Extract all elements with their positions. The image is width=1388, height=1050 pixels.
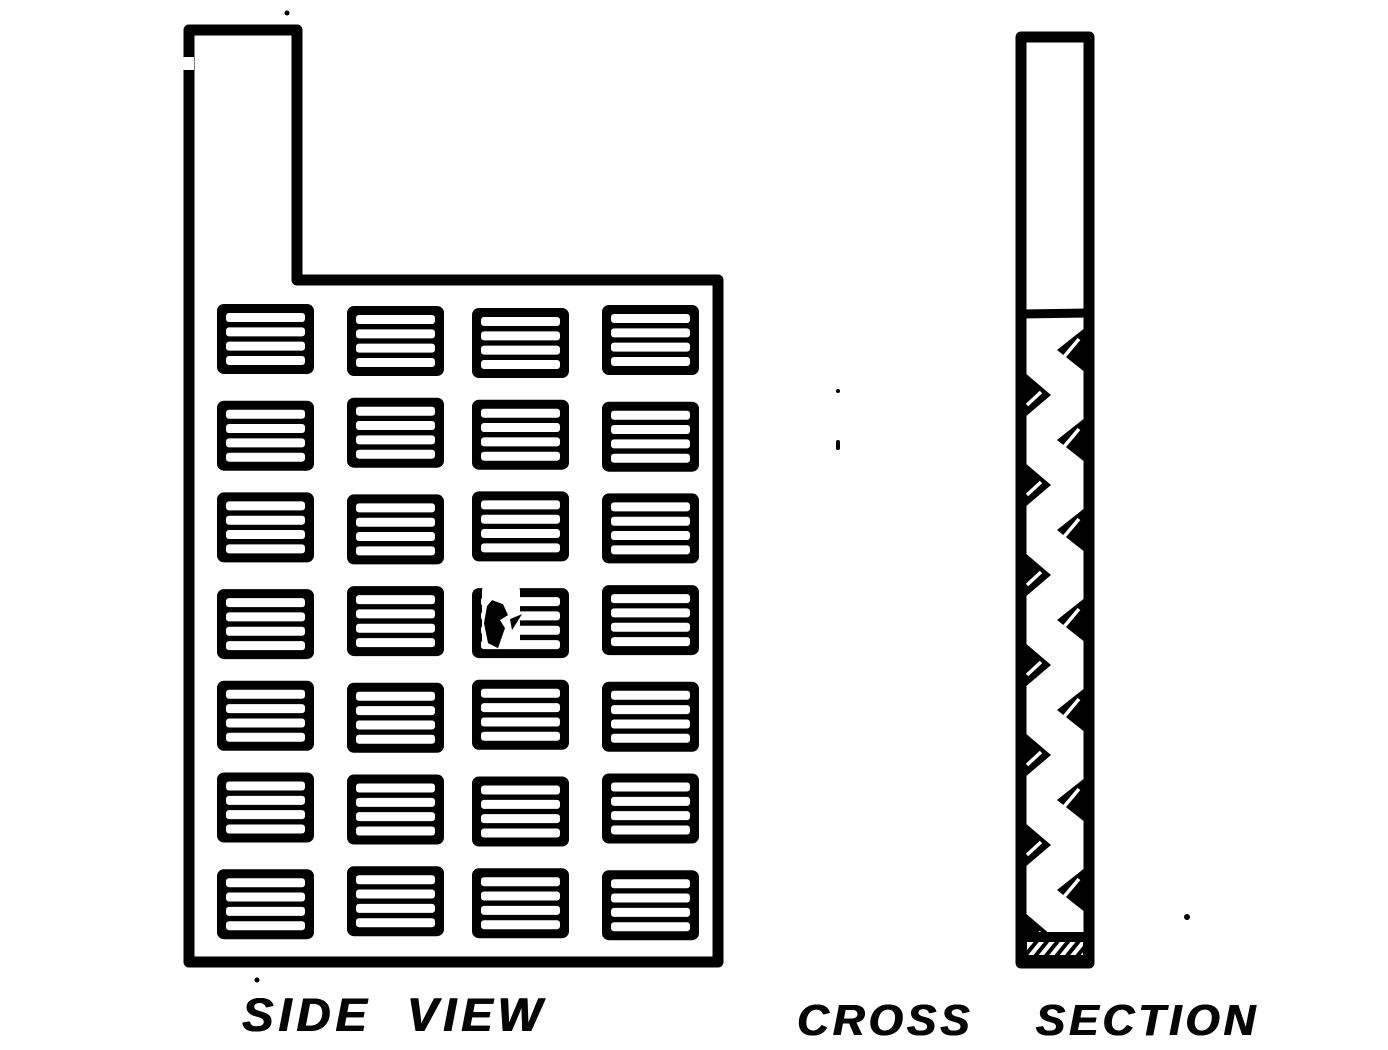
- side-view-figure: [181, 30, 718, 962]
- grid-cell-stripe: [226, 641, 305, 650]
- grid-cell: [217, 304, 314, 374]
- grid-cell-stripe: [611, 783, 690, 792]
- grid-cell-stripe: [611, 879, 690, 888]
- grid-cell-stripe: [356, 407, 435, 416]
- grid-cell-stripe: [356, 692, 435, 701]
- grid-cell-stripe: [226, 438, 305, 447]
- grid-cell-stripe: [611, 594, 690, 603]
- grid-cell-stripe: [611, 531, 690, 540]
- figure-canvas: SIDE VIEW CROSS SECTION: [0, 0, 1388, 1050]
- grid-cell-stripe: [356, 450, 435, 459]
- grid-cell-stripe: [611, 357, 690, 366]
- grid-cell-stripe: [226, 704, 305, 713]
- grid-cell-stripe: [356, 358, 435, 367]
- grid-cell-stripe: [226, 356, 305, 365]
- grid-cell-stripe: [356, 518, 435, 527]
- grid-cell: [472, 308, 569, 378]
- cross-section-divider-line: [1021, 313, 1089, 314]
- grid-cell-stripe: [481, 877, 560, 886]
- grid-cell-stripe: [356, 918, 435, 927]
- grid-cell-stripe: [611, 517, 690, 526]
- grid-cell-stripe: [611, 734, 690, 743]
- grid-cell-stripe: [226, 410, 305, 419]
- grid-cell-stripe: [611, 411, 690, 420]
- grid-cell-stripe: [226, 810, 305, 819]
- grid-cell-stripe: [356, 435, 435, 444]
- grid-cell-stripe: [481, 906, 560, 915]
- ink-speck: [255, 978, 260, 983]
- grid-cell-stripe: [226, 530, 305, 539]
- grid-cell-stripe: [356, 609, 435, 618]
- grid-cell-stripe: [356, 784, 435, 793]
- scan-gap-artifact: [181, 57, 194, 70]
- grid-cell-stripe: [481, 346, 560, 355]
- grid-cell-stripe: [481, 703, 560, 712]
- grid-cell-stripe: [226, 342, 305, 351]
- grid-cell: [347, 866, 444, 936]
- grid-cell-stripe: [356, 826, 435, 835]
- grid-cell-stripe: [356, 595, 435, 604]
- grid-cell-stripe: [481, 331, 560, 340]
- grid-cell-stripe: [356, 315, 435, 324]
- grid-cell-stripe: [226, 824, 305, 833]
- grid-cell-stripe: [356, 735, 435, 744]
- grid-cell-stripe: [356, 875, 435, 884]
- grid-cell-stripe: [611, 454, 690, 463]
- grid-cell-stripe: [481, 500, 560, 509]
- grid-cell: [217, 401, 314, 471]
- grid-cell: [472, 777, 569, 847]
- grid-cell: [347, 494, 444, 564]
- grid-cell: [602, 585, 699, 655]
- ink-speck: [1184, 914, 1190, 920]
- grid-cell-stripe: [481, 437, 560, 446]
- grid-cell-stripe: [226, 921, 305, 930]
- grid-cell: [347, 586, 444, 656]
- grid-cell-stripe: [356, 329, 435, 338]
- grid-cell-stripe: [611, 425, 690, 434]
- grid-cell-stripe: [226, 544, 305, 553]
- grid-cell-stripe: [356, 532, 435, 541]
- grid-cell-stripe: [481, 317, 560, 326]
- grid-cell: [602, 870, 699, 940]
- grid-cell-stripe: [226, 424, 305, 433]
- grid-cell-stripe: [481, 409, 560, 418]
- grid-cell-stripe: [481, 732, 560, 741]
- grid-cell-stripe: [226, 718, 305, 727]
- grid-cell-stripe: [356, 546, 435, 555]
- grid-cell-stripe: [611, 328, 690, 337]
- grid-cell-stripe: [611, 922, 690, 931]
- grid-cell-stripe: [356, 624, 435, 633]
- grid-cell-stripe: [481, 892, 560, 901]
- grid-cell-stripe: [611, 894, 690, 903]
- grid-cell-stripe: [611, 623, 690, 632]
- grid-cell-stripe: [226, 501, 305, 510]
- grid-cell-stripe: [481, 543, 560, 552]
- ink-speck: [285, 11, 290, 16]
- grid-cell-stripe: [356, 798, 435, 807]
- grid-cell: [347, 306, 444, 376]
- grid-cell-stripe: [481, 423, 560, 432]
- grid-cell: [217, 589, 314, 659]
- grid-cell-stripe: [356, 890, 435, 899]
- grid-cell-stripe: [356, 503, 435, 512]
- grid-cell-stripe: [611, 825, 690, 834]
- grid-cell: [472, 491, 569, 561]
- grid-cell-stripe: [481, 786, 560, 795]
- grid-cell: [217, 492, 314, 562]
- grid-cell-stripe: [481, 515, 560, 524]
- grid-cell: [347, 775, 444, 845]
- grid-cell-stripe: [226, 612, 305, 621]
- grid-cell-stripe: [226, 907, 305, 916]
- grid-cell-stripe: [611, 608, 690, 617]
- grid-cell-stripe: [611, 705, 690, 714]
- grid-cell-stripe: [226, 733, 305, 742]
- cross-section-label: CROSS SECTION: [797, 996, 1259, 1046]
- grid-cell-stripe: [611, 439, 690, 448]
- grid-cell-stripe: [481, 800, 560, 809]
- grid-cell-stripe: [226, 782, 305, 791]
- grid-cell-stripe: [611, 502, 690, 511]
- grid-cell: [472, 680, 569, 750]
- grid-cell-stripe: [226, 516, 305, 525]
- grid-cell: [347, 398, 444, 468]
- grid-cell-stripe: [356, 638, 435, 647]
- grid-cell: [347, 683, 444, 753]
- grid-cell-stripe: [226, 598, 305, 607]
- grid-cell: [472, 400, 569, 470]
- grid-cell-stripe: [481, 828, 560, 837]
- grid-cell: [472, 585, 569, 658]
- grid-cell-stripe: [481, 360, 560, 369]
- grid-cell: [602, 305, 699, 375]
- grid-cell-stripe: [356, 421, 435, 430]
- side-view-label: SIDE VIEW: [242, 987, 547, 1042]
- grid-cell: [602, 682, 699, 752]
- grid-cell-stripe: [611, 797, 690, 806]
- grid-cell-stripe: [226, 327, 305, 336]
- grid-cell: [472, 868, 569, 938]
- grid-cell-stripe: [226, 796, 305, 805]
- grid-cell-stripe: [611, 811, 690, 820]
- ink-speck: [836, 440, 840, 450]
- grid-cell-stripe: [611, 719, 690, 728]
- ink-speck: [836, 389, 840, 393]
- grid-cell-stripe: [611, 691, 690, 700]
- grid-cell-stripe: [481, 920, 560, 929]
- cross-section-hatched-base: [1022, 937, 1090, 960]
- grid-cell: [217, 773, 314, 843]
- grid-cell-stripe: [356, 344, 435, 353]
- grid-cell: [602, 493, 699, 563]
- grid-cell-stripe: [481, 529, 560, 538]
- grid-cell-stripe: [226, 313, 305, 322]
- grid-cell: [602, 774, 699, 844]
- grid-cell-stripe: [356, 812, 435, 821]
- grid-cell-stripe: [611, 637, 690, 646]
- grid-cell-stripe: [356, 720, 435, 729]
- grid-cell-stripe: [481, 717, 560, 726]
- grid-cell-stripe: [611, 314, 690, 323]
- grid-cell: [602, 402, 699, 472]
- grid-cell-stripe: [356, 706, 435, 715]
- grid-cell-stripe: [611, 908, 690, 917]
- grid-cell-stripe: [481, 814, 560, 823]
- grid-cell-stripe: [481, 689, 560, 698]
- technical-drawing: [0, 0, 1388, 1050]
- grid-cell-stripe: [226, 690, 305, 699]
- grid-cell: [217, 869, 314, 939]
- grid-cell-stripe: [356, 904, 435, 913]
- grid-cell-stripe: [481, 452, 560, 461]
- cross-section-figure: [1021, 37, 1090, 963]
- grid-cell-stripe: [611, 545, 690, 554]
- grid-cell-stripe: [611, 343, 690, 352]
- grid-cell-stripe: [226, 627, 305, 636]
- grid-cell: [217, 681, 314, 751]
- grid-cell-stripe: [226, 453, 305, 462]
- grid-cell-stripe: [226, 878, 305, 887]
- grid-cell-stripe: [226, 893, 305, 902]
